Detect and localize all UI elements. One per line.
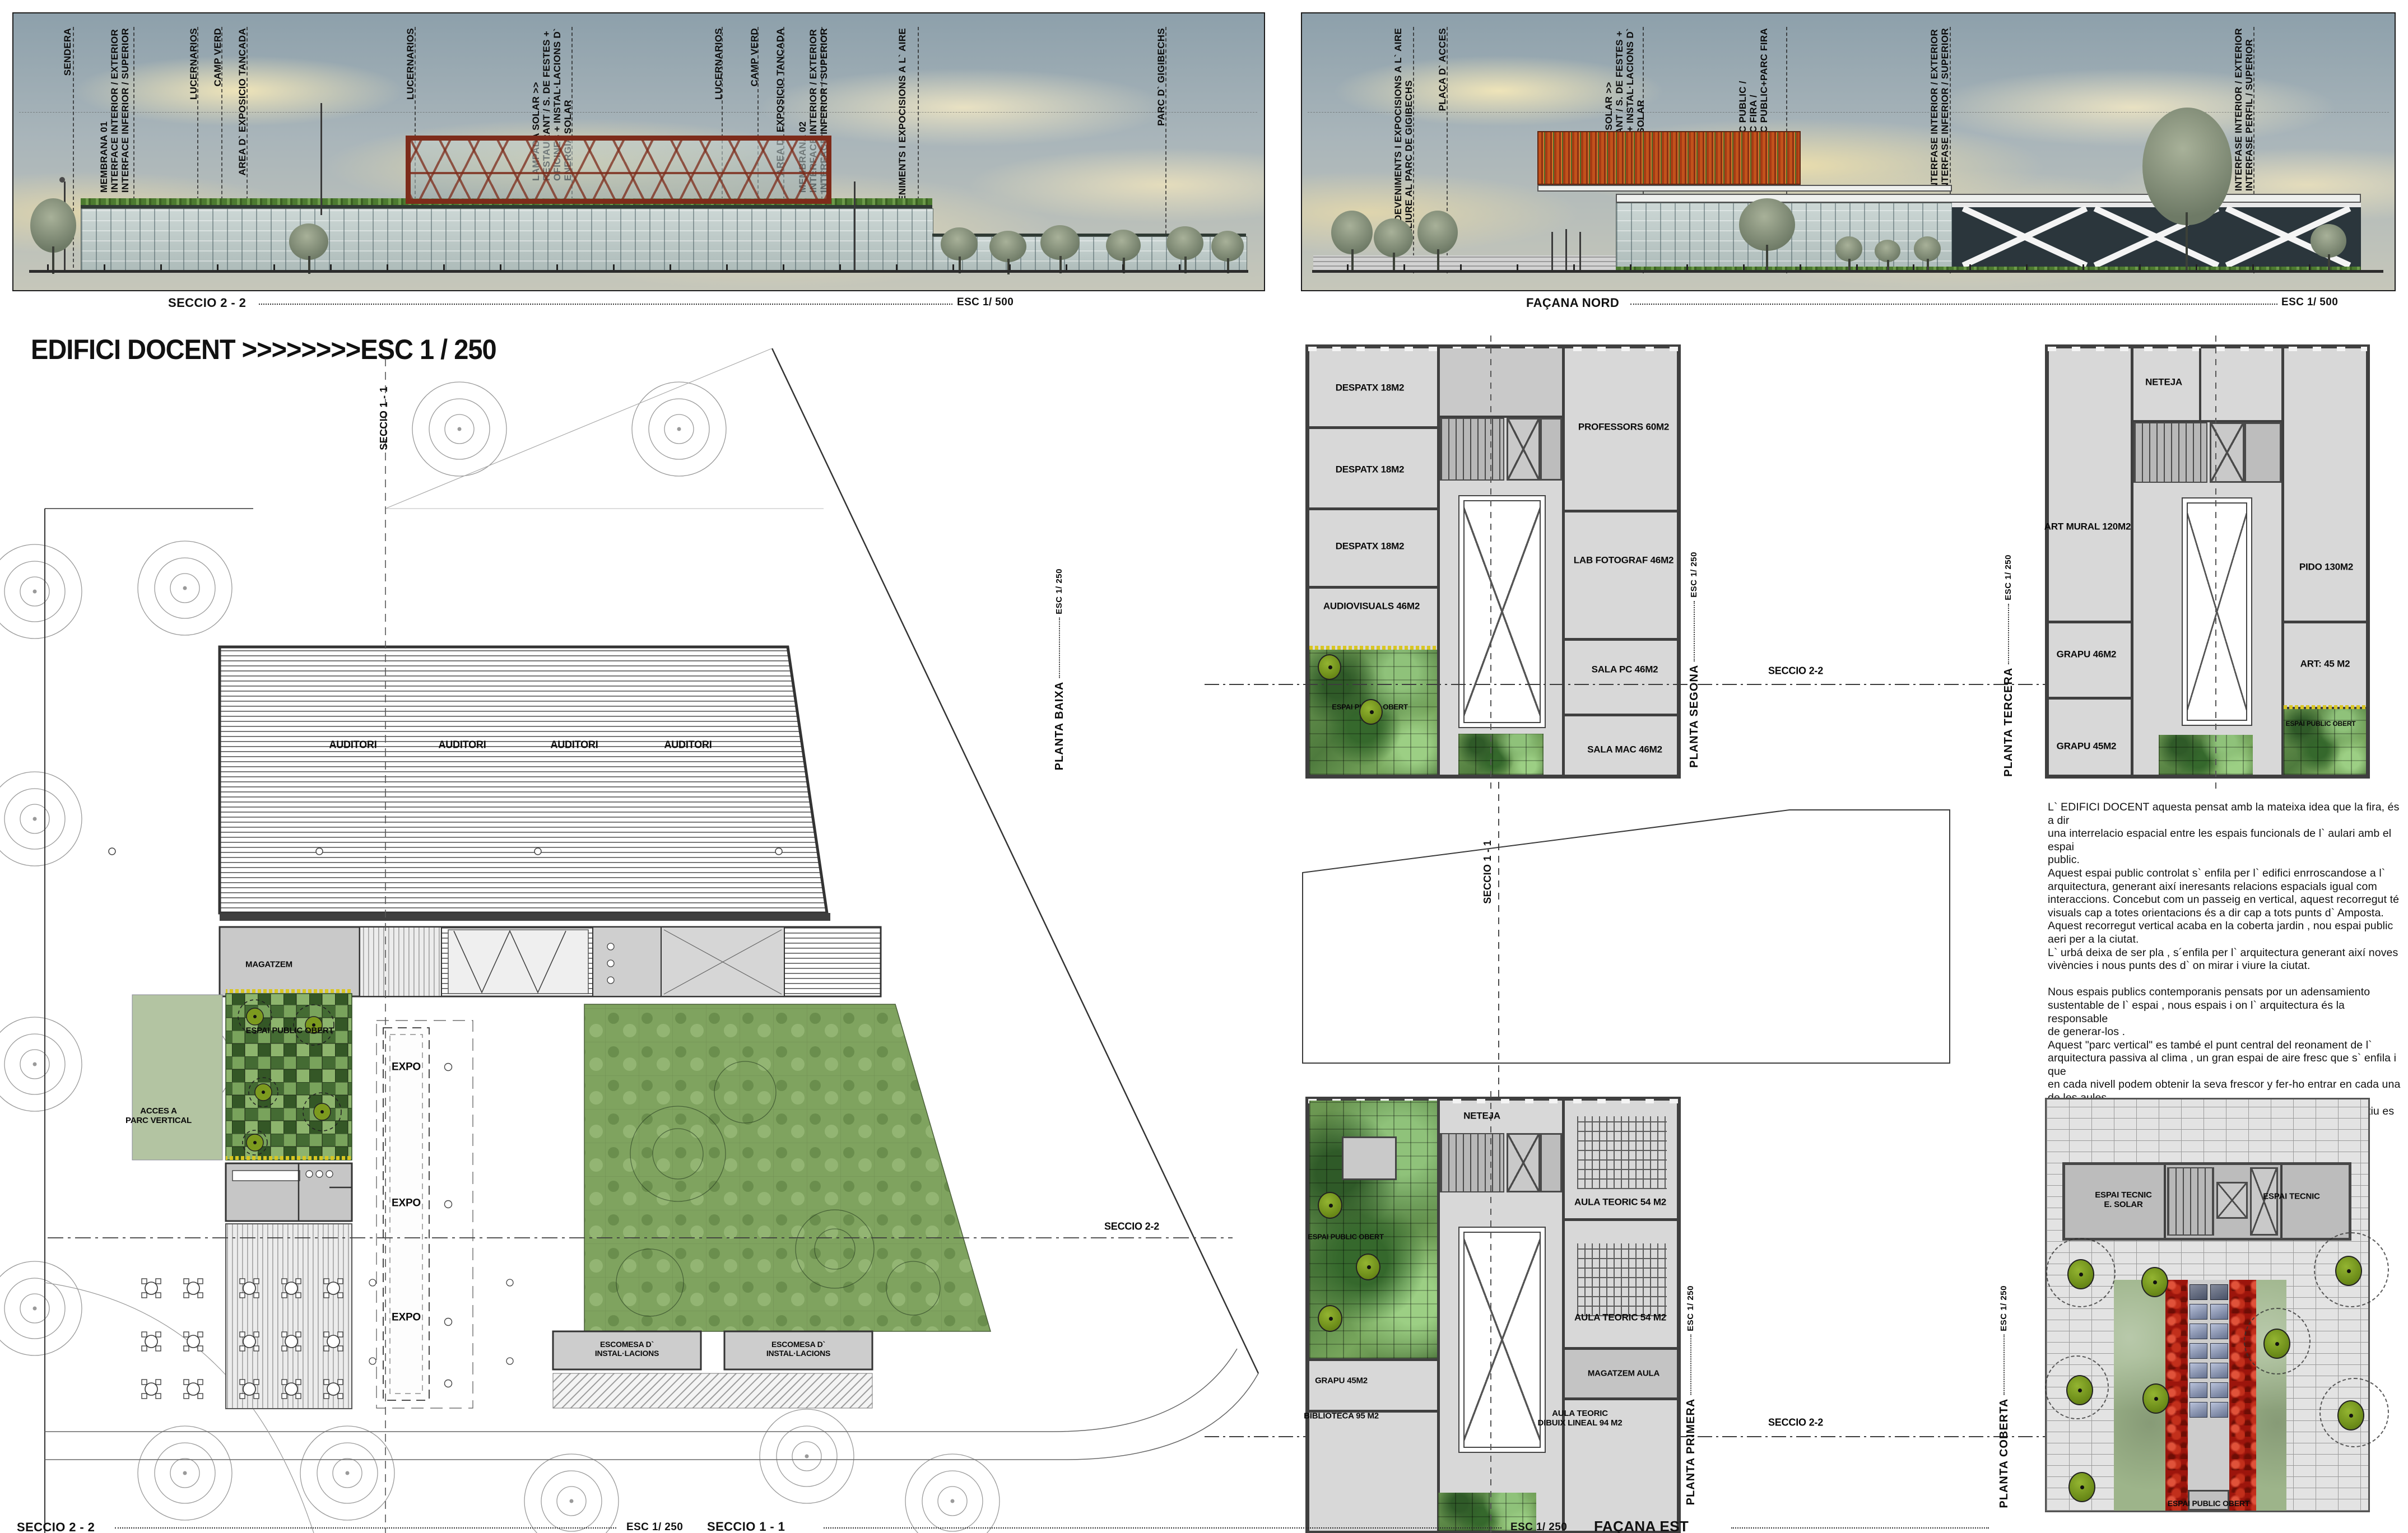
- plan-name-tercera: PLANTA TERCERAESC 1/ 250: [2002, 555, 2015, 777]
- tree: [2068, 1472, 2095, 1502]
- facana-nord-panel: ESDEVENIMENTS I EXPOCISIONS A L` AIRE LL…: [1301, 12, 2396, 291]
- stair-core: [2133, 422, 2207, 483]
- room-label: DESPATX 18M2: [1336, 464, 1405, 475]
- vent-shaft: [2250, 1167, 2278, 1236]
- tree: [1331, 211, 1373, 271]
- wall: [1562, 348, 1565, 775]
- aula-seating: [1577, 1116, 1667, 1189]
- seccio-2-2-line: [1205, 684, 2045, 685]
- elevator: [2216, 1182, 2248, 1219]
- wall: [2199, 348, 2201, 420]
- footer-caption: SECCIO 2 - 2: [17, 1520, 95, 1533]
- wall: [1565, 510, 1677, 512]
- elevator: [1507, 418, 1540, 481]
- atrium-void: [1458, 1227, 1546, 1453]
- plan-name-text: PLANTA PRIMERA: [1685, 1399, 1697, 1506]
- annotation-label: CAMP VERD: [749, 28, 760, 86]
- room-label: ESPAI PUBLIC OBERT: [2286, 720, 2356, 728]
- tree: [2066, 1375, 2093, 1405]
- annotation-label: LUCERNARIOS: [405, 28, 416, 100]
- axis-line: [1490, 1087, 1491, 1533]
- room-label: ART: 45 M2: [2300, 659, 2350, 669]
- footer-scale: ESC 1/ 250: [626, 1521, 683, 1533]
- room-label: SALA MAC 46M2: [1587, 744, 1662, 755]
- leader: [1690, 1335, 1691, 1395]
- aula-seating: [1577, 1243, 1667, 1316]
- site-parcel-outline: [1301, 807, 1954, 1067]
- solar-walkway: [2188, 1280, 2229, 1511]
- wc-block: [1440, 348, 1562, 418]
- flower-fringe: [1309, 646, 1437, 650]
- annotation-label: LUCERNARIOS: [188, 28, 199, 100]
- stair-in-green: [1342, 1136, 1397, 1180]
- building-section-glazing: [81, 208, 933, 272]
- section-marker: SECCIO 2-2: [1104, 1222, 1159, 1232]
- footer-scale: ESC 1/ 250: [1510, 1521, 1567, 1533]
- caption-leader: [115, 1527, 616, 1529]
- room-label-escomesa: ESCOMESA D` INSTAL·LACIONS: [766, 1340, 830, 1358]
- annotation-label: ESDEVENIMENTS I EXPOCISIONS A L` AIRE LL…: [1393, 28, 1414, 235]
- annotation-label: SENDERA: [62, 28, 73, 76]
- caption-leader: [259, 304, 952, 305]
- room-label-auditori: AUDITORI: [329, 740, 376, 751]
- caption-leader: [1630, 304, 2277, 305]
- annotation-label: INTERFASE INTERIOR / EXTERIOR INTERFASE …: [1929, 28, 1950, 192]
- room-label: DESPATX 18M2: [1336, 541, 1405, 552]
- large-tree: [2142, 108, 2232, 271]
- plan-name-text: PLANTA BAIXA: [1053, 682, 1066, 771]
- planta-coberta-plate: [2045, 1098, 2370, 1512]
- room-label: BIBLIOTECA 95 M2: [1304, 1411, 1379, 1421]
- section-2-2-panel: SENDERA MEMBRANA 01 INTERFACE INTERIOR /…: [12, 12, 1265, 291]
- plan-name-text: PLANTA SEGONA: [1688, 665, 1700, 768]
- wall: [1309, 1358, 1437, 1361]
- tree: [2142, 1383, 2169, 1414]
- facade-scale: ESC 1/ 500: [2281, 296, 2338, 309]
- leader: [2008, 604, 2009, 664]
- presentation-sheet: SENDERA MEMBRANA 01 INTERFACE INTERIOR /…: [0, 0, 2408, 1533]
- ground-line: [29, 270, 1248, 273]
- wall: [1565, 638, 1677, 641]
- wall: [1565, 1218, 1677, 1221]
- room-label: GRAPU 46M2: [2057, 649, 2117, 660]
- caption-leader: [1731, 1527, 1989, 1529]
- tree: [1359, 699, 1383, 725]
- section-scale: ESC 1/ 500: [957, 296, 1014, 309]
- project-description: L` EDIFICI DOCENT aquesta pensat amb la …: [2048, 801, 2406, 1131]
- room-label: ESPAI PUBLIC OBERT: [2168, 1499, 2249, 1508]
- plan-name-primera: PLANTA PRIMERAESC 1/ 250: [1685, 1285, 1698, 1505]
- wall: [2280, 1165, 2283, 1238]
- leader: [1694, 601, 1695, 661]
- pavilion-deck: [411, 172, 826, 174]
- tree: [1417, 211, 1458, 271]
- solar-panel: [2189, 1343, 2207, 1359]
- solar-panel: [2210, 1402, 2228, 1418]
- atrium-void: [2182, 497, 2252, 726]
- atrium-void: [1458, 495, 1546, 728]
- section-caption: SECCIO 2 - 2: [168, 296, 246, 310]
- room-label-magatzem: MAGATZEM: [245, 960, 292, 970]
- room-label: ART MURAL 120M2: [2044, 521, 2131, 532]
- room-label: NETEJA: [2145, 377, 2182, 388]
- room-label: AULA TEORIC 54 M2: [1574, 1197, 1666, 1208]
- wall: [1309, 426, 1437, 429]
- stair-core: [1440, 1133, 1504, 1192]
- wall: [2049, 621, 2131, 623]
- solar-panels: [2189, 1284, 2227, 1418]
- window-band: [2048, 347, 2367, 351]
- plan-scale-text: ESC 1/ 250: [1999, 1285, 2009, 1331]
- tree: [30, 198, 76, 274]
- stair-core: [2167, 1167, 2214, 1236]
- plan-name-coberta: PLANTA COBERTAESC 1/ 250: [1998, 1285, 2011, 1508]
- wall: [2284, 621, 2366, 623]
- plan-scale-text: ESC 1/ 250: [1054, 569, 1064, 614]
- room-label: AUDIOVISUALS 46M2: [1323, 601, 1420, 612]
- plan-name-segona: PLANTA SEGONAESC 1/ 250: [1688, 552, 1701, 768]
- solar-panel: [2210, 1304, 2228, 1320]
- solar-panel: [2189, 1382, 2207, 1398]
- room-label-auditori: AUDITORI: [550, 740, 598, 751]
- footer-caption: SECCIO 1 - 1: [707, 1520, 785, 1533]
- wall: [1309, 586, 1437, 589]
- axis-line: [1490, 335, 1491, 789]
- solar-panel: [2189, 1284, 2207, 1300]
- room-label: NETEJA: [1463, 1111, 1500, 1121]
- solar-panel: [2210, 1284, 2228, 1300]
- shaft: [1540, 1133, 1562, 1192]
- roof-band: [1616, 194, 2361, 203]
- plan-scale-text: ESC 1/ 250: [2003, 555, 2013, 600]
- wall: [2164, 1165, 2166, 1238]
- tree: [1739, 198, 1795, 271]
- room-label: ESPAI PUBLIC OBERT: [1308, 1233, 1384, 1241]
- room-label: LAB FOTOGRAF 46M2: [1574, 555, 1674, 566]
- solar-panel: [2210, 1343, 2228, 1359]
- room-label-expo: EXPO: [392, 1062, 421, 1073]
- room-label-auditori: AUDITORI: [664, 740, 712, 751]
- footer-caption: FAÇANA EST: [1594, 1518, 1689, 1533]
- green-stair: [1458, 734, 1544, 775]
- section-marker: SECCIO 2-2: [1768, 666, 1823, 677]
- section-marker: SECCIO 1 - 1: [379, 386, 389, 450]
- annotation-label: CAMP VERD: [212, 28, 223, 86]
- tree: [2141, 1267, 2168, 1297]
- room-label: GRAPU 45M2: [2057, 741, 2117, 752]
- wall: [1565, 714, 1677, 716]
- tree: [1318, 1192, 1342, 1219]
- plan-name-text: PLANTA COBERTA: [1998, 1399, 2010, 1508]
- wall: [1562, 1101, 1565, 1531]
- solar-panel: [2189, 1304, 2207, 1320]
- tree: [2335, 1256, 2362, 1286]
- axis-line: [2215, 335, 2216, 789]
- elevator: [1507, 1133, 1540, 1192]
- shaft: [2244, 422, 2281, 483]
- solar-panel: [2189, 1363, 2207, 1378]
- room-label-escomesa: ESCOMESA D` INSTAL·LACIONS: [595, 1340, 659, 1358]
- shaft: [1540, 418, 1562, 481]
- leader: [2003, 1335, 2005, 1395]
- room-label: GRAPU 45M2: [1315, 1376, 1368, 1386]
- solar-panel: [2189, 1402, 2207, 1418]
- room-label: PROFESSORS 60M2: [1578, 422, 1669, 432]
- room-label: AULA TEORIC 54 M2: [1574, 1312, 1666, 1323]
- tree: [1318, 1305, 1342, 1332]
- solar-panel: [2210, 1382, 2228, 1398]
- green-stair: [2159, 735, 2253, 775]
- room-label: ESPAI TECNIC: [2263, 1192, 2320, 1201]
- room-label: PIDO 130M2: [2299, 562, 2353, 572]
- tree: [2067, 1259, 2094, 1289]
- room-label-auditori: AUDITORI: [438, 740, 486, 751]
- annotation-label: INTERFASE INTERIOR / EXTERIOR INTERFASE …: [2233, 28, 2254, 191]
- room-label-acces: ACCES A PARC VERTICAL: [125, 1106, 192, 1125]
- plan-scale-text: ESC 1/ 250: [1689, 552, 1699, 598]
- room-label-expo: EXPO: [392, 1312, 421, 1323]
- facade-caption: FAÇANA NORD: [1526, 296, 1619, 310]
- rose-bed: [2229, 1280, 2256, 1511]
- tree: [2337, 1400, 2364, 1431]
- ground-line: [1312, 270, 2383, 273]
- room-label: DESPATX 18M2: [1336, 383, 1405, 393]
- room-label: AULA TEORIC DIBUIX LINEAL 94 M2: [1538, 1409, 1623, 1428]
- annotation-label: LUCERNARIOS: [713, 28, 724, 100]
- leader: [1059, 618, 1060, 678]
- solar-lamp-pavilion: [406, 136, 831, 204]
- annotation-label: AREA D` EXPOSICIO TANCADA: [237, 28, 248, 175]
- annotation-label: PARC D` GIGIBECHS: [1156, 28, 1166, 126]
- flower-fringe: [2284, 705, 2366, 709]
- green-public-space: [2284, 709, 2366, 775]
- room-label: MAGATZEM AULA: [1588, 1369, 1659, 1378]
- plan-name-baixa: PLANTA BAIXAESC 1/ 250: [1053, 569, 1066, 770]
- solar-panel: [2189, 1324, 2207, 1339]
- stair-core: [1440, 418, 1504, 481]
- caption-leader: [824, 1527, 1501, 1529]
- tree: [2263, 1329, 2290, 1359]
- annotation-label: PLAÇA D` ACCES: [1437, 28, 1448, 111]
- tree: [1318, 654, 1341, 680]
- wall: [1309, 507, 1437, 510]
- solar-panel: [2210, 1324, 2228, 1339]
- room-label-expo: EXPO: [392, 1198, 421, 1209]
- room-label-espai-public: ESPAI PUBLIC OBERT: [246, 1026, 334, 1036]
- tree: [1356, 1254, 1380, 1280]
- light-post: [854, 181, 856, 271]
- canopy-slab: [1537, 185, 1952, 192]
- section-marker: SECCIO 2-2: [1768, 1418, 1823, 1428]
- solar-panel: [2210, 1363, 2228, 1378]
- room-label: ESPAI TECNIC E. SOLAR: [2095, 1190, 2152, 1209]
- mast: [320, 103, 322, 215]
- wall: [2049, 697, 2131, 700]
- solar-lamp-volume: [1537, 131, 1801, 185]
- light-lamp: [59, 177, 65, 183]
- wall: [1565, 1397, 1677, 1400]
- room-label: SALA PC 46M2: [1592, 664, 1658, 675]
- annotation-label: MEMBRANA 01 INTERFACE INTERIOR / EXTERIO…: [99, 28, 131, 193]
- datum-line: [19, 112, 1257, 113]
- plan-scale-text: ESC 1/ 250: [1686, 1285, 1695, 1331]
- wall: [2131, 348, 2133, 775]
